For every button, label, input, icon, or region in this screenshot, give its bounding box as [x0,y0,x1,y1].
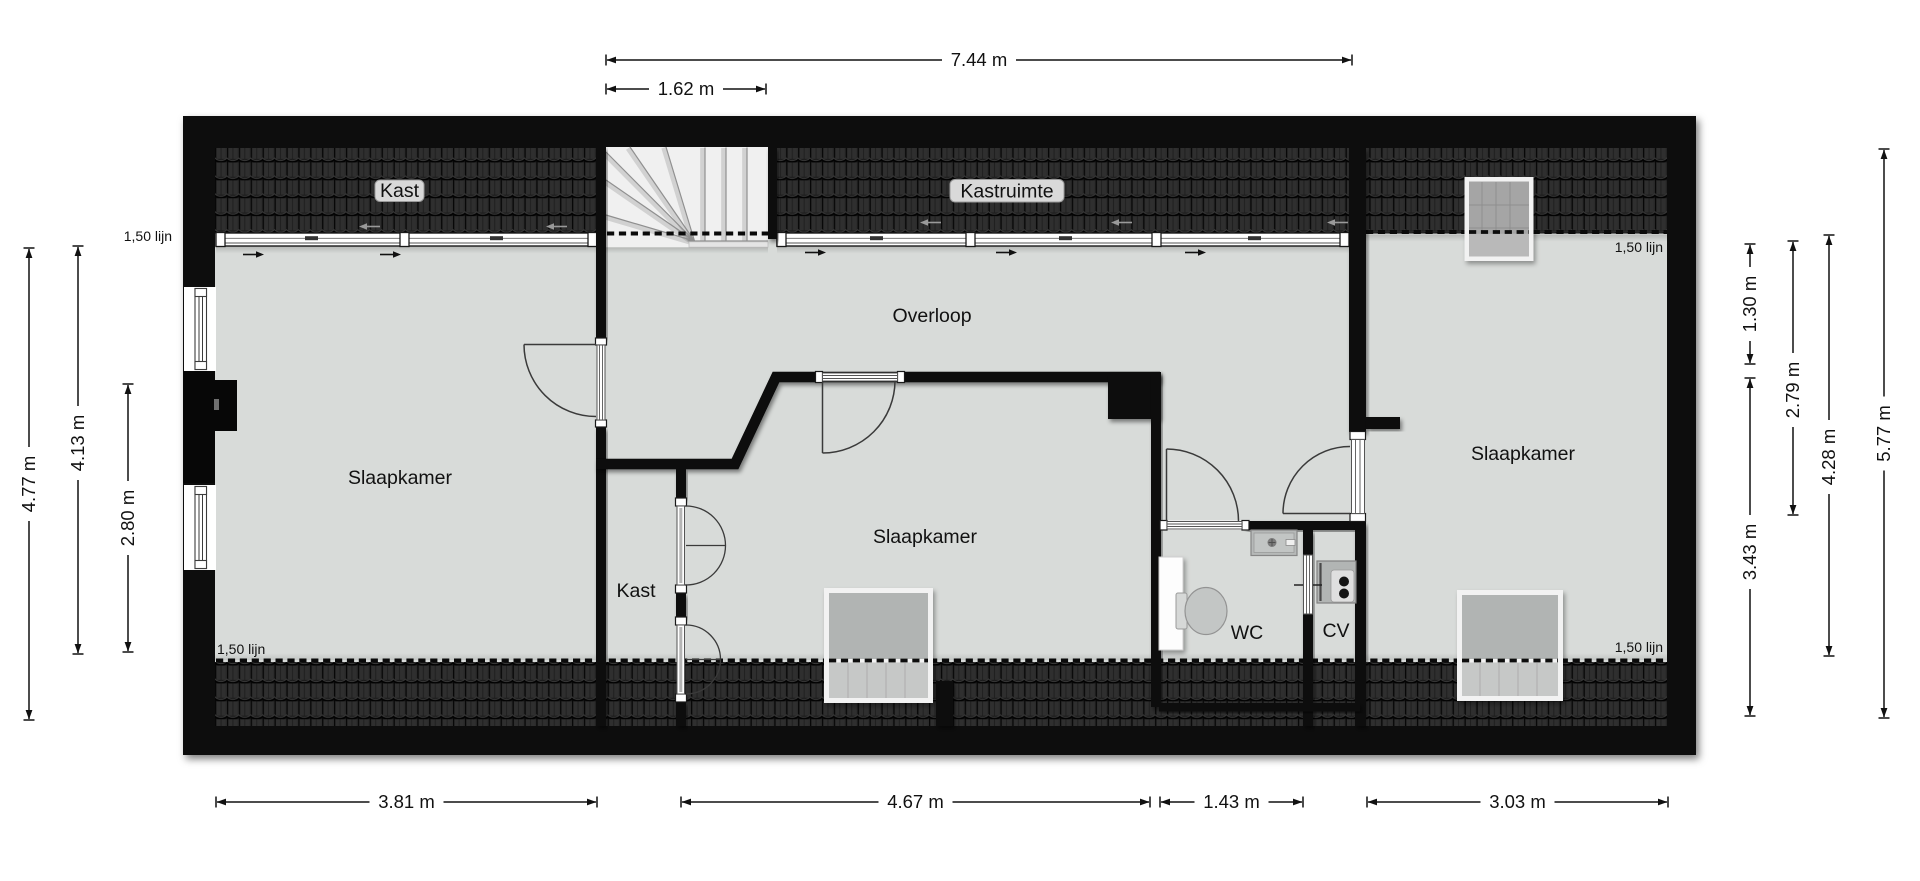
svg-text:1,50 lijn: 1,50 lijn [124,228,172,244]
svg-text:7.44 m: 7.44 m [951,49,1008,70]
svg-text:4.77 m: 4.77 m [18,456,39,513]
svg-text:1,50 lijn: 1,50 lijn [1615,639,1663,655]
svg-text:1.30 m: 1.30 m [1739,276,1760,333]
svg-text:2.79 m: 2.79 m [1782,362,1803,419]
svg-text:4.13 m: 4.13 m [67,415,88,472]
svg-text:1.43 m: 1.43 m [1203,791,1260,812]
svg-text:5.77 m: 5.77 m [1873,405,1894,462]
svg-text:Slaapkamer: Slaapkamer [348,467,453,489]
svg-text:CV: CV [1322,620,1349,642]
svg-text:Overloop: Overloop [892,305,971,327]
svg-text:Slaapkamer: Slaapkamer [1471,443,1576,465]
svg-text:Slaapkamer: Slaapkamer [873,526,978,548]
svg-text:3.81 m: 3.81 m [378,791,435,812]
svg-text:2.80 m: 2.80 m [117,490,138,547]
svg-text:1,50 lijn: 1,50 lijn [1615,239,1663,255]
svg-text:1,50 lijn: 1,50 lijn [217,641,265,657]
svg-text:4.28 m: 4.28 m [1818,429,1839,486]
svg-text:4.67 m: 4.67 m [887,791,944,812]
svg-text:3.43 m: 3.43 m [1739,524,1760,581]
svg-text:3.03 m: 3.03 m [1489,791,1546,812]
svg-text:Kast: Kast [616,580,656,602]
svg-text:Kastruimte: Kastruimte [960,181,1053,203]
svg-text:Kast: Kast [380,180,420,202]
svg-text:WC: WC [1231,622,1264,644]
svg-text:1.62 m: 1.62 m [658,78,715,99]
